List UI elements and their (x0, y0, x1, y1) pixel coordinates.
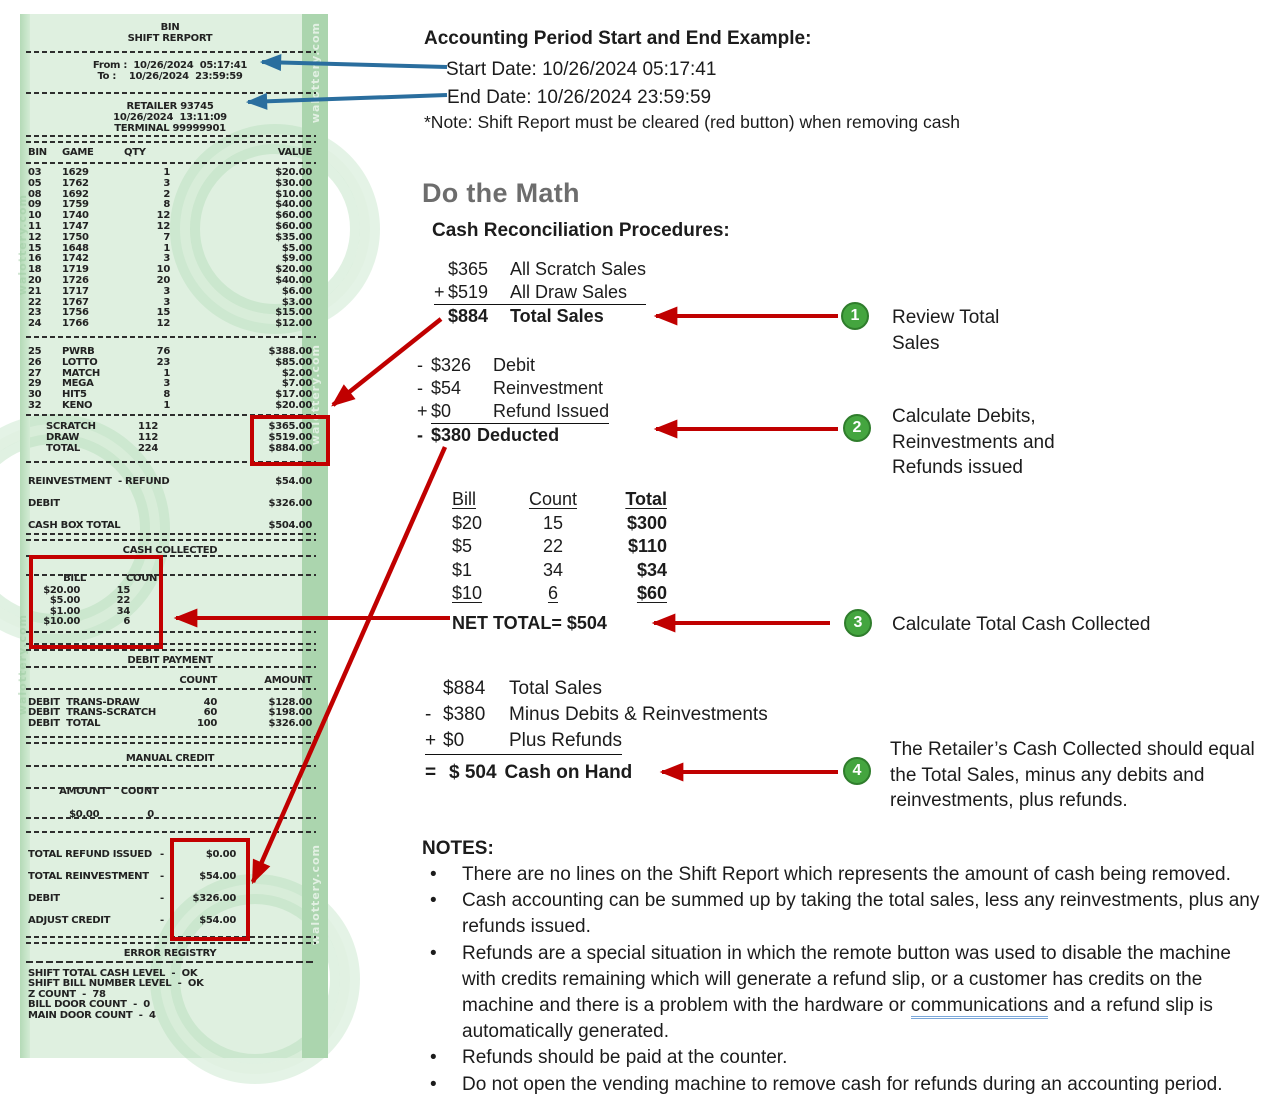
totals-label: TOTAL (28, 443, 124, 454)
step-badge-3: 3 (844, 609, 872, 637)
divider-double (26, 533, 316, 535)
math-label: Plus Refunds (509, 728, 622, 754)
cell-qty: 12 (124, 319, 170, 330)
adjustment-label: TOTAL REFUND ISSUED (28, 844, 160, 866)
table-row: 32 KENO 1 $20.00 (28, 401, 312, 412)
highlight-box-sales-totals (250, 415, 330, 466)
math-sign: + (434, 281, 448, 304)
bullet-text: There are no lines on the Shift Report w… (462, 862, 1268, 888)
bill-count-total-table: Bill Count Total $20 15 $300 $5 22 $110 … (452, 488, 667, 634)
cell-count: 6 (548, 583, 558, 603)
divider (26, 666, 316, 668)
summary-value: $504.00 (269, 520, 312, 531)
math-row: + $519 All Draw Sales (434, 281, 646, 305)
math-label: Refund Issued (493, 400, 609, 423)
step-label-3: Calculate Total Cash Collected (892, 612, 1222, 638)
cell-bin: 32 (28, 401, 62, 412)
math-row: $884 Total Sales (425, 676, 768, 702)
math-block-deductions: - $326 Debit - $54 Reinvestment + $0Refu… (417, 354, 609, 447)
table-row: $5 22 $110 (452, 535, 667, 559)
divider (26, 765, 316, 767)
debit-payment-header: COUNT AMOUNT (28, 675, 312, 686)
debit-payment-table: DEBIT TRANS-DRAW 40 $128.00 DEBIT TRANS-… (28, 698, 312, 729)
error-registry-title: ERROR REGISTRY (28, 948, 312, 959)
end-date-line: End Date: 10/26/2024 23:59:59 (447, 84, 711, 112)
adjustment-label: DEBIT (28, 888, 160, 910)
step-label-2: Calculate Debits, Reinvestments and Refu… (892, 404, 1102, 481)
cell-value: $20.00 (170, 401, 312, 412)
note-bullet: • Cash accounting can be summed up by ta… (422, 888, 1268, 940)
math-amount: $884 (443, 676, 509, 702)
math-sign (434, 305, 448, 328)
divider (26, 92, 316, 94)
highlight-box-adjustments (170, 838, 250, 941)
table-row: $1 34 $34 (452, 559, 667, 583)
table-row: 12 1750 7 $35.00 (28, 233, 312, 244)
math-sign: - (425, 702, 443, 728)
bullet-marker: • (422, 862, 462, 888)
math-sign: = (425, 760, 449, 786)
cell-bill: $1 (452, 559, 514, 583)
math-label: All Draw Sales (510, 281, 627, 304)
col-game: GAME (62, 148, 124, 159)
divider (26, 51, 316, 53)
underlined-sum: $0Refund Issued (431, 400, 609, 424)
shift-report-receipt: walottery.com walottery.com walottery.co… (20, 14, 328, 1058)
highlight-box-cash-collected (29, 555, 163, 649)
math-block-cash-on-hand: $884 Total Sales - $380 Minus Debits & R… (425, 676, 768, 786)
math-label: Cash on Hand (505, 760, 633, 786)
summary-row: DEBIT $326.00 (28, 498, 312, 509)
bullet-text: Cash accounting can be summed up by taki… (462, 888, 1268, 940)
cell-total: $34 (592, 559, 667, 583)
from-label: From : (93, 60, 127, 71)
net-total-line: NET TOTAL= $504 (452, 613, 667, 634)
math-sign: - (417, 354, 431, 377)
math-sign: + (417, 400, 431, 424)
totals-qty: 112 (124, 432, 158, 443)
note-bullet: • Do not open the vending machine to rem… (422, 1072, 1268, 1095)
summary-row: REINVESTMENT - REFUND $54.00 (28, 476, 312, 487)
terminal-id: TERMINAL 99999901 (28, 123, 312, 134)
col-bin: BIN (28, 148, 62, 159)
math-amount: $ 504 (449, 760, 497, 786)
notes-list: • There are no lines on the Shift Report… (422, 862, 1268, 1095)
cell-bill: $20 (452, 512, 514, 536)
cell-value: $6.00 (170, 287, 312, 298)
math-row: + $0Refund Issued (417, 400, 609, 424)
bill-header: Bill (452, 489, 476, 509)
math-sign: + (425, 728, 443, 754)
step-badge-2: 2 (843, 414, 871, 442)
math-block-total-sales: $365 All Scratch Sales + $519 All Draw S… (434, 258, 646, 328)
totals-qty: 112 (124, 421, 158, 432)
math-row: - $380 Deducted (417, 424, 609, 447)
cell-game: LOTTO (62, 358, 124, 369)
cell-bill: $5 (452, 535, 514, 559)
summary-value: $326.00 (269, 498, 312, 509)
totals-label: SCRATCH (28, 421, 124, 432)
step-label-1: Review Total Sales (892, 305, 1022, 356)
step-label-4: The Retailer’s Cash Collected should equ… (890, 737, 1258, 814)
summary-label: REINVESTMENT - REFUND (28, 476, 169, 487)
step-number: 3 (854, 614, 863, 632)
table-header-row: Bill Count Total (452, 488, 667, 512)
cell-qty: 1 (124, 401, 170, 412)
math-row: - $326 Debit (417, 354, 609, 377)
summary-value: $54.00 (275, 476, 312, 487)
col-qty: QTY (124, 148, 170, 159)
cell-bill: $10 (452, 583, 482, 603)
cell-value: $35.00 (170, 233, 312, 244)
accounting-period-title: Accounting Period Start and End Example: (424, 28, 811, 50)
cell-total: $300 (592, 512, 667, 536)
notes-section: NOTES: • There are no lines on the Shift… (422, 836, 1268, 1095)
divider (26, 162, 316, 164)
math-row: + $0 Plus Refunds (425, 728, 622, 755)
summary-row: CASH BOX TOTAL $504.00 (28, 520, 312, 531)
cell-count: 22 (514, 535, 592, 559)
receipt-title-bin: BIN (28, 22, 312, 33)
math-row-result: = $ 504 Cash on Hand (425, 760, 768, 786)
do-the-math-heading: Do the Math (422, 178, 580, 209)
cell-bin: 12 (28, 233, 62, 244)
step-number: 2 (853, 419, 862, 437)
math-label: All Scratch Sales (510, 258, 646, 281)
divider (26, 688, 316, 690)
math-amount: $0 (443, 728, 509, 754)
math-label: Deducted (477, 424, 559, 447)
step-number: 1 (851, 307, 860, 325)
math-row: - $380 Minus Debits & Reinvestments (425, 702, 768, 728)
math-amount: $884 (448, 305, 510, 328)
math-label: Minus Debits & Reinvestments (509, 702, 768, 728)
step-badge-4: 4 (843, 757, 871, 785)
bullet-marker: • (422, 1072, 462, 1095)
cell-game: KENO (62, 401, 124, 412)
debit-label: DEBIT TOTAL (28, 719, 162, 729)
period-from-row: From : 10/26/2024 05:17:41 (28, 60, 312, 71)
receipt-title-shift-report: SHIFT RERPORT (28, 33, 312, 44)
cell-qty: 7 (124, 233, 170, 244)
cell-game: 1717 (62, 287, 124, 298)
math-amount: $380 (443, 702, 509, 728)
divider (26, 831, 316, 833)
math-amount: $380 (431, 424, 471, 447)
step-number: 4 (853, 762, 862, 780)
bullet-text-before: Do not open the vending machine to remov… (462, 1074, 1222, 1095)
debit-count: 100 (162, 719, 217, 729)
cell-bin: 05 (28, 179, 62, 190)
note-bullet: • Refunds are a special situation in whi… (422, 941, 1268, 1046)
table-row: $20 15 $300 (452, 512, 667, 536)
note-bullet: • Refunds should be paid at the counter. (422, 1045, 1268, 1071)
summary-label: CASH BOX TOTAL (28, 520, 120, 531)
retailer-id: RETAILER 93745 (28, 101, 312, 112)
col-value: VALUE (170, 148, 312, 159)
adjustment-label: TOTAL REINVESTMENT (28, 866, 160, 888)
clear-shift-note: *Note: Shift Report must be cleared (red… (424, 112, 960, 133)
count-header: Count (529, 489, 577, 509)
bin-table: 03 1629 1 $20.00 05 1762 3 $30.00 08 169… (28, 168, 312, 330)
procedures-subheading: Cash Reconciliation Procedures: (432, 220, 730, 242)
cell-bin: 26 (28, 358, 62, 369)
table-row: 21 1717 3 $6.00 (28, 287, 312, 298)
bullet-text: Refunds are a special situation in which… (462, 941, 1268, 1046)
cell-bin: 24 (28, 319, 62, 330)
from-value: 10/26/2024 05:17:41 (133, 60, 247, 71)
amount-header: AMOUNT (217, 675, 312, 686)
math-amount: $54 (431, 377, 493, 400)
divider-double (26, 135, 316, 137)
bullet-text: Refunds should be paid at the counter. (462, 1045, 1268, 1071)
cell-game: 1766 (62, 319, 124, 330)
debit-payment-title: DEBIT PAYMENT (28, 655, 312, 666)
table-row: 26 LOTTO 23 $85.00 (28, 358, 312, 369)
start-date-line: Start Date: 10/26/2024 05:17:41 (446, 56, 716, 84)
cell-value: $30.00 (170, 179, 312, 190)
math-row: $365 All Scratch Sales (434, 258, 646, 281)
summary-label: DEBIT (28, 498, 60, 509)
retailer-datetime: 10/26/2024 13:11:09 (28, 112, 312, 123)
page: walottery.com walottery.com walottery.co… (0, 0, 1281, 1095)
bullet-text: Do not open the vending machine to remov… (462, 1072, 1268, 1095)
period-to-row: To : 10/26/2024 23:59:59 (28, 71, 312, 82)
cell-game: 1762 (62, 179, 124, 190)
error-registry-row: MAIN DOOR COUNT - 4 (28, 1011, 312, 1021)
table-row: 24 1766 12 $12.00 (28, 319, 312, 330)
bullet-text-before: There are no lines on the Shift Report w… (462, 864, 1231, 885)
divider (26, 961, 316, 963)
count-header: COUNT (147, 675, 217, 686)
math-label: Debit (493, 354, 535, 377)
cell-total: $110 (592, 535, 667, 559)
to-value: 10/26/2024 23:59:59 (129, 71, 243, 82)
bullet-marker: • (422, 888, 462, 940)
math-row: $884 Total Sales (434, 305, 646, 328)
communications-link[interactable]: communications (911, 995, 1048, 1019)
manual-credit-row: $0.000 (28, 798, 312, 831)
bullet-marker: • (422, 941, 462, 1046)
cell-qty: 3 (124, 179, 170, 190)
note-bullet: • There are no lines on the Shift Report… (422, 862, 1268, 888)
cell-count: 34 (514, 559, 592, 583)
bullet-text-before: Cash accounting can be summed up by taki… (462, 890, 1259, 937)
debit-row: DEBIT TOTAL 100 $326.00 (28, 719, 312, 729)
cell-value: $12.00 (170, 319, 312, 330)
math-amount: $365 (448, 258, 510, 281)
totals-label: DRAW (28, 432, 124, 443)
step-badge-1: 1 (841, 302, 869, 330)
math-label: Total Sales (510, 305, 604, 328)
math-sign (434, 258, 448, 281)
draw-game-table: 25 PWRB 76 $388.00 26 LOTTO 23 $85.00 27… (28, 347, 312, 412)
bin-table-header: BIN GAME QTY VALUE (28, 148, 312, 159)
math-row: - $54 Reinvestment (417, 377, 609, 400)
math-label: Total Sales (509, 676, 602, 702)
math-sign: - (417, 377, 431, 400)
cell-game: 1750 (62, 233, 124, 244)
adjustment-label: ADJUST CREDIT (28, 910, 160, 932)
math-label: Reinvestment (493, 377, 603, 400)
math-amount: $0 (431, 400, 493, 423)
divider (26, 336, 316, 338)
cell-bin: 21 (28, 287, 62, 298)
math-sign: - (417, 424, 431, 447)
debit-amount: $326.00 (217, 719, 312, 729)
notes-title: NOTES: (422, 836, 1268, 862)
bullet-text-before: Refunds should be paid at the counter. (462, 1047, 787, 1068)
divider (26, 787, 316, 789)
totals-qty: 224 (124, 443, 158, 454)
total-header: Total (625, 489, 667, 509)
to-label: To : (97, 71, 116, 82)
table-row: 05 1762 3 $30.00 (28, 179, 312, 190)
cell-qty: 23 (124, 358, 170, 369)
math-amount: $519 (448, 281, 510, 304)
divider-double (26, 736, 316, 738)
cell-qty: 3 (124, 287, 170, 298)
manual-credit-title: MANUAL CREDIT (28, 753, 312, 764)
divider (26, 817, 316, 819)
error-registry-list: SHIFT TOTAL CASH LEVEL - OKSHIFT BILL NU… (28, 969, 312, 1021)
bullet-marker: • (422, 1045, 462, 1071)
cell-count: 15 (514, 512, 592, 536)
table-row: $10 6 $60 (452, 582, 667, 606)
cell-value: $85.00 (170, 358, 312, 369)
math-sign (425, 676, 443, 702)
cell-total: $60 (637, 583, 667, 603)
math-amount: $326 (431, 354, 493, 377)
